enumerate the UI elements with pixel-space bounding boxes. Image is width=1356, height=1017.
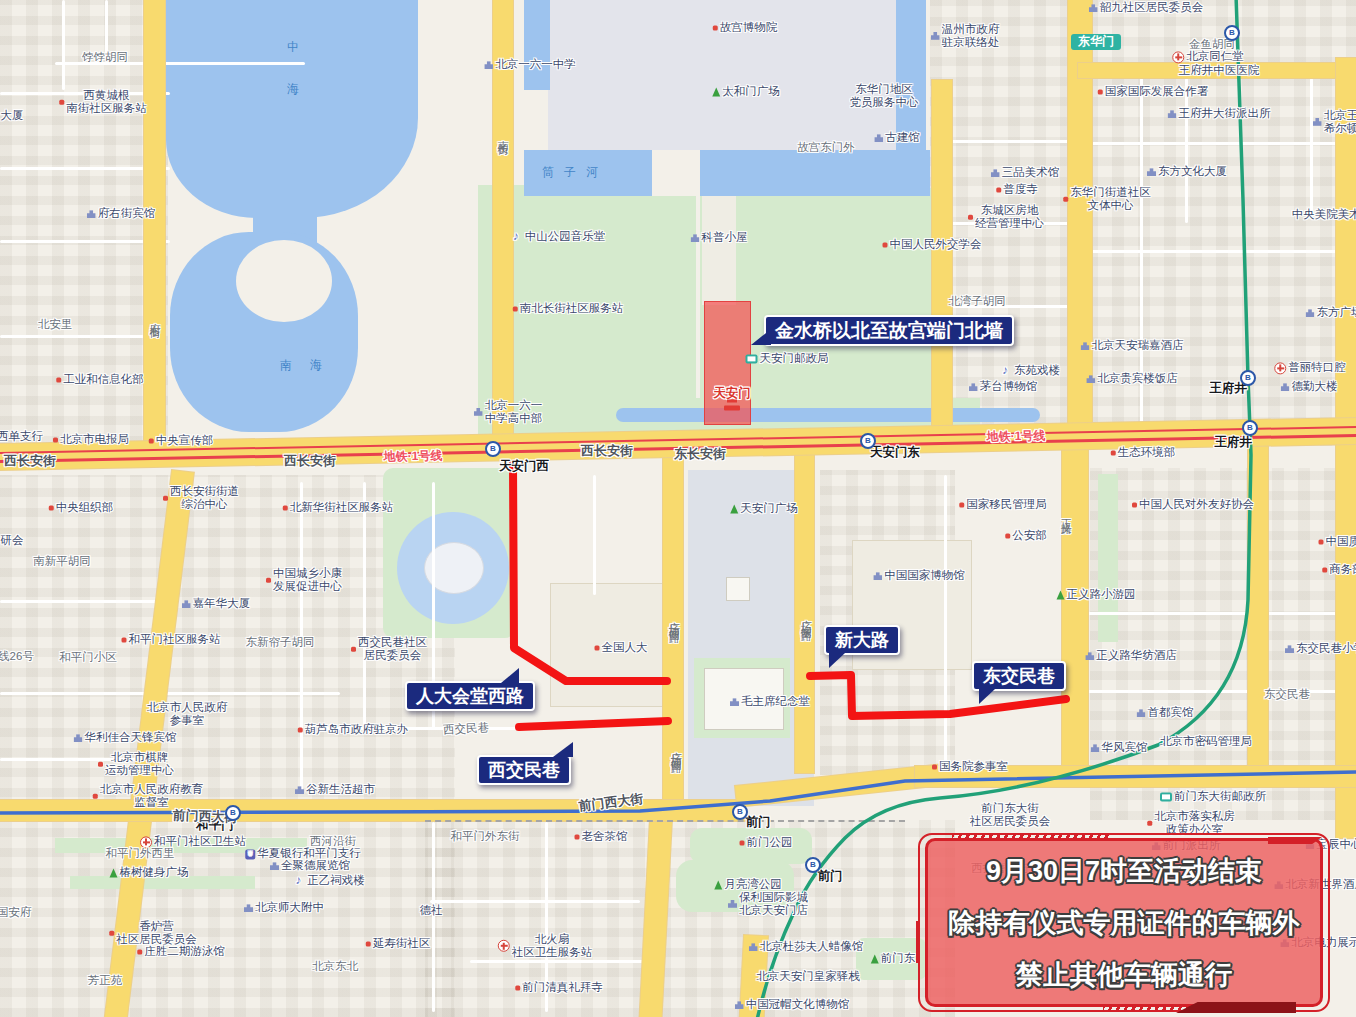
restriction-notice-panel: 9月30日7时至活动结束 除持有仪式专用证件的车辆外 禁止其他车辆通行 xyxy=(918,833,1330,1012)
restricted-route-renda-west-road xyxy=(513,464,667,681)
beijing-traffic-map[interactable]: 饽饽胡同西黄城根南街社区服务站大厦府右街宾馆北安里工业和信息化部西单支行北京市电… xyxy=(0,0,1356,1017)
notice-line-2: 除持有仪式专用证件的车辆外 xyxy=(949,905,1300,941)
callout-label: 新大路 xyxy=(835,630,889,650)
notice-text: 9月30日7时至活动结束 除持有仪式专用证件的车辆外 禁止其他车辆通行 xyxy=(918,833,1330,1012)
callout-xijiaominxiang: 西交民巷 xyxy=(477,755,571,785)
restricted-route-xijiaominxiang xyxy=(519,721,668,727)
callout-dongjiaominxiang: 东交民巷 xyxy=(972,661,1066,691)
callout-label: 金水桥以北至故宫端门北墙 xyxy=(775,320,1003,341)
callout-label: 人大会堂西路 xyxy=(416,686,524,706)
callout-label: 东交民巷 xyxy=(983,666,1055,686)
callout-jinshuiqiao-zone: 金水桥以北至故宫端门北墙 xyxy=(764,315,1014,346)
callout-renda-west-road: 人大会堂西路 xyxy=(405,681,535,711)
callout-xindalu: 新大路 xyxy=(824,625,900,655)
callout-label: 西交民巷 xyxy=(488,760,560,780)
notice-line-3: 禁止其他车辆通行 xyxy=(1016,957,1232,993)
notice-line-1: 9月30日7时至活动结束 xyxy=(986,853,1262,889)
